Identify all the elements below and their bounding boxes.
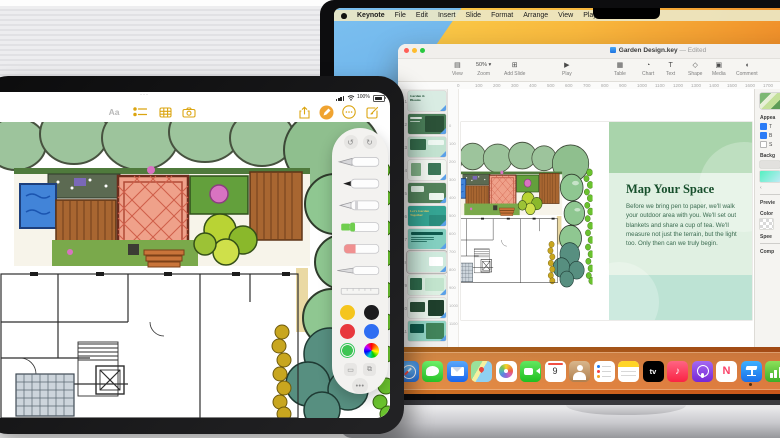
ruler-tick: 1200 <box>673 83 683 88</box>
vruler-tick: 100 <box>449 141 456 146</box>
vruler-tick: 600 <box>449 231 456 236</box>
battery-percent: 100% <box>357 94 370 100</box>
thumbnail-corner-flag <box>440 335 446 341</box>
preview-section-label: Previe <box>760 200 780 206</box>
thumbnail-title: Garden & Blooms <box>410 95 436 102</box>
vruler-tick: 800 <box>449 267 456 272</box>
toolbar-shape-label: Shape <box>688 71 702 77</box>
slide-thumbnail[interactable] <box>408 321 446 341</box>
slide-thumbnail-art <box>408 160 446 180</box>
toolbar-view-button[interactable]: ▤View <box>452 61 463 77</box>
background-wall <box>0 6 352 85</box>
color-swatch-red[interactable] <box>340 324 355 339</box>
color-swatch-yellow[interactable] <box>340 305 355 320</box>
thumbnail-block <box>411 232 444 234</box>
cellular-icon <box>336 96 344 101</box>
ruler-tick: 1400 <box>709 83 719 88</box>
background-swatch[interactable] <box>760 161 780 168</box>
ruler-tick: 300 <box>511 83 519 88</box>
slide-canvas-area[interactable]: Map Your Space Before we bring pen to pa… <box>459 89 754 347</box>
slide-thumbnail[interactable] <box>408 160 446 180</box>
slide-garden-illustration <box>461 122 609 320</box>
ruler-tick: 1500 <box>727 83 737 88</box>
toolbar-play-label: Play <box>562 71 572 77</box>
slide-thumbnail-art <box>408 183 446 203</box>
thumbnail-block <box>411 163 421 176</box>
slide-thumbnail-art <box>408 321 446 341</box>
dock-music-icon[interactable]: ♪ <box>667 356 689 386</box>
ruler-tick: 700 <box>583 83 591 88</box>
ruler-tick: 800 <box>601 83 609 88</box>
slide-thumbnail-art <box>408 275 446 295</box>
slide-thumbnail-art: Let's Garden Together <box>408 206 446 226</box>
pen-tool[interactable] <box>340 201 379 210</box>
slide-thumbnail-art <box>408 252 446 272</box>
view-icon: ▤ <box>452 61 463 70</box>
vruler-tick: 0 <box>449 123 451 128</box>
undo-button[interactable]: ↺ <box>344 135 358 149</box>
dock-facetime-icon[interactable] <box>520 356 542 386</box>
slide-thumbnail-art <box>408 137 446 157</box>
chart-icon: ◔ <box>642 61 654 70</box>
toolbar-chart-label: Chart <box>642 71 654 77</box>
menu-item-format[interactable]: Format <box>491 12 513 19</box>
thumbnail-corner-flag <box>440 105 446 111</box>
slide-thumbnail-row-11[interactable]: 11 <box>398 321 447 341</box>
markup-tools <box>332 152 388 302</box>
panel-checkbox-row[interactable]: S <box>760 141 780 148</box>
toolbar-add-slide-button[interactable]: ⊞Add Slide <box>504 61 525 77</box>
ruler-tick: 1000 <box>637 83 647 88</box>
notes-toolbar: Aa <box>0 102 390 122</box>
dock-messages-icon[interactable] <box>422 356 444 386</box>
dock-mail-icon[interactable] <box>446 356 468 386</box>
thumbnail-title: Let's Garden Together <box>410 210 436 217</box>
toolbar-shape-button[interactable]: ◇Shape <box>688 61 702 77</box>
color-swatch-blue[interactable] <box>364 324 379 339</box>
multitasking-handle[interactable]: ··· <box>140 92 149 98</box>
thumbnail-corner-flag <box>440 266 446 272</box>
checkbox[interactable] <box>760 123 767 130</box>
thumbnail-corner-flag <box>440 151 446 157</box>
toolbar-zoom-label: Zoom <box>476 71 491 77</box>
slide-thumbnail-row-10[interactable]: 10 <box>398 298 447 318</box>
markup-active-button[interactable] <box>318 104 334 120</box>
media-insert-button[interactable]: ▭ <box>344 363 357 376</box>
zoom-icon: 50% ▾ <box>476 61 491 70</box>
vruler-tick: 700 <box>449 249 456 254</box>
color-swatch-black[interactable] <box>364 305 379 320</box>
marker-tool[interactable] <box>343 179 379 188</box>
panel-checkbox-row[interactable]: B <box>760 132 780 139</box>
panel-divider <box>760 243 780 244</box>
slide-thumbnail[interactable]: Garden & Blooms <box>408 91 446 111</box>
thumbnail-corner-flag <box>440 220 446 226</box>
shape-icon: ◇ <box>688 61 702 70</box>
checkbox-label: S <box>769 142 772 148</box>
vruler-tick: 200 <box>449 159 456 164</box>
ruler-tool[interactable] <box>341 288 379 294</box>
dock-news-icon[interactable]: N <box>716 356 738 386</box>
macos-menu-bar: KeynoteFileEditInsertSlideFormatArrangeV… <box>334 10 780 21</box>
display-notch <box>593 8 660 19</box>
toolbar-media-button[interactable]: ▣Media <box>712 61 726 77</box>
menu-item-keynote[interactable]: Keynote <box>357 12 385 19</box>
checkbox-label: T <box>769 124 772 130</box>
comment-icon: ◖ <box>736 61 758 70</box>
current-slide[interactable]: Map Your Space Before we bring pen to pa… <box>461 122 752 320</box>
toolbar-media-label: Media <box>712 71 726 77</box>
thumbnail-block <box>410 324 424 333</box>
ruler-tick: 1700 <box>763 83 773 88</box>
table-button[interactable] <box>157 104 173 120</box>
wifi-icon <box>347 94 355 101</box>
slide-thumbnail-row-3[interactable]: 3 <box>398 137 447 157</box>
thumbnail-corner-flag <box>440 128 446 134</box>
camera-button[interactable] <box>181 104 197 120</box>
slide-thumbnail-row-4[interactable]: 4 <box>398 160 447 180</box>
toolbar-text-label: Text <box>666 71 675 77</box>
vruler-tick: 500 <box>449 213 456 218</box>
checklist-button[interactable] <box>132 104 148 120</box>
slide-thumbnail-art <box>408 298 446 318</box>
eraser-tool[interactable] <box>344 244 379 253</box>
dock-numbers-icon[interactable] <box>765 356 780 386</box>
slide-thumbnail-row-5[interactable]: 5 <box>398 183 447 203</box>
toolbar-chart-button[interactable]: ◔Chart <box>642 61 654 77</box>
dock-keynote-icon[interactable] <box>740 356 762 386</box>
toolbar-table-label: Table <box>614 71 626 77</box>
ruler-tick: 500 <box>547 83 555 88</box>
toolbar-add-slide-label: Add Slide <box>504 71 525 77</box>
dock-tv-icon[interactable]: tv <box>642 356 664 386</box>
gradient-swatch[interactable] <box>760 171 780 182</box>
slide-thumbnail-row-9[interactable]: 9 <box>398 275 447 295</box>
ruler-tick: 100 <box>475 83 483 88</box>
keynote-window: Garden Design.key — Edited ▤View50% ▾Zoo… <box>398 44 780 347</box>
menu-item-insert[interactable]: Insert <box>438 12 456 19</box>
ruler-tick: 1600 <box>745 83 755 88</box>
slide-thumbnail-row-8[interactable]: 8 <box>398 252 447 272</box>
toolbar-table-button[interactable]: ▦Table <box>614 61 626 77</box>
slide-body-text: Before we bring pen to paper, we'll walk… <box>626 202 740 248</box>
thumbnail-corner-flag <box>440 197 446 203</box>
menu-item-edit[interactable]: Edit <box>416 12 428 19</box>
panel-checkbox-row[interactable]: T <box>760 123 780 130</box>
text-format-button[interactable]: Aa <box>106 104 122 120</box>
slide-thumbnail-art: Garden & Blooms <box>408 91 446 111</box>
dock-photos-icon[interactable] <box>495 356 517 386</box>
menu-item-view[interactable]: View <box>558 12 573 19</box>
ipad-status-bar: ··· 100% <box>0 92 390 102</box>
redo-button[interactable]: ↻ <box>363 135 377 149</box>
ipad-screen: ··· 100% Aa <box>0 92 390 418</box>
ruler-tick: 1300 <box>691 83 701 88</box>
dock-calendar-icon[interactable]: 9 <box>544 356 566 386</box>
slide-thumbnail[interactable] <box>408 252 446 272</box>
play-icon: ▶ <box>562 61 572 70</box>
slide-text-panel: Map Your Space Before we bring pen to pa… <box>609 122 752 320</box>
thumbnail-block <box>410 139 426 150</box>
color-swatches <box>340 305 380 358</box>
toolbar-zoom-button[interactable]: 50% ▾Zoom <box>476 61 491 77</box>
thumbnail-block <box>428 140 444 145</box>
slide-thumbnail[interactable] <box>408 137 446 157</box>
thumbnail-block <box>410 278 421 290</box>
ruler-tick: 400 <box>529 83 537 88</box>
more-options-button[interactable] <box>341 104 357 120</box>
dock-podcasts-icon[interactable] <box>691 356 713 386</box>
checkbox-label: B <box>769 133 772 139</box>
slide-thumbnail-row-6[interactable]: 6Let's Garden Together <box>398 206 447 226</box>
apple-menu-icon[interactable] <box>341 13 347 19</box>
format-inspector-panel: AppeaTBSBackg‹PrevieColorSpeeComp <box>754 89 780 347</box>
slide-thumbnail[interactable] <box>408 229 446 249</box>
checkbox[interactable] <box>760 132 767 139</box>
appearance-section-label: Appea <box>760 115 780 121</box>
active-app-indicator <box>749 383 752 386</box>
thumbnail-block <box>410 117 422 119</box>
thumbnail-corner-flag <box>440 174 446 180</box>
keynote-toolbar: ▤View50% ▾Zoom⊞Add Slide▶Play▦Table◔Char… <box>398 59 780 82</box>
slide-thumbnail-row-2[interactable]: 2 <box>398 114 447 134</box>
checkbox[interactable] <box>760 141 767 148</box>
ruler-tick: 900 <box>619 83 627 88</box>
menu-item-file[interactable]: File <box>395 12 406 19</box>
speed-section-label: Spee <box>760 234 780 240</box>
keynote-doc-icon <box>610 47 616 53</box>
thumbnail-block <box>411 237 435 238</box>
dock-reminders-icon[interactable] <box>593 356 615 386</box>
window-titlebar[interactable]: Garden Design.key — Edited <box>398 44 780 59</box>
vruler-tick: 300 <box>449 177 456 182</box>
window-title: Garden Design.key — Edited <box>398 47 780 54</box>
macos-dock: 9tv♪N <box>392 352 780 390</box>
toolbar-comment-button[interactable]: ◖Comment <box>736 61 758 77</box>
thumbnail-block <box>410 121 420 122</box>
thumbnail-corner-flag <box>440 312 446 318</box>
share-button[interactable] <box>296 104 312 120</box>
color-checker-swatch[interactable] <box>760 219 773 229</box>
thumbnail-block <box>410 302 425 313</box>
lid-groove <box>566 405 686 415</box>
vruler-tick: 1100 <box>449 321 458 326</box>
palette-more-button[interactable]: ••• <box>352 378 368 394</box>
color-section-label: Color <box>760 211 780 217</box>
panel-preview-thumbnail <box>760 93 780 109</box>
slide-thumbnail-row-1[interactable]: 1Garden & Blooms <box>398 91 447 111</box>
slide-thumbnail[interactable] <box>408 114 446 134</box>
ruler-tick: 1100 <box>655 83 665 88</box>
shapes-button[interactable]: ⧉ <box>363 363 376 376</box>
color-swatch-green[interactable] <box>340 343 355 358</box>
thumbnail-block <box>411 239 435 240</box>
slide-navigator: 1Garden & Blooms23456Let's Garden Togeth… <box>398 89 448 347</box>
slide-title: Map Your Space <box>626 182 714 197</box>
vruler-tick: 1000 <box>449 303 458 308</box>
slide-thumbnail[interactable] <box>408 183 446 203</box>
slide-thumbnail-row-7[interactable]: 7 <box>398 229 447 249</box>
media-icon: ▣ <box>712 61 726 70</box>
collapse-chevron-icon[interactable]: ‹ <box>760 185 780 191</box>
slide-thumbnail-art <box>408 229 446 249</box>
slide-thumbnail[interactable]: Let's Garden Together <box>408 206 446 226</box>
compose-button[interactable] <box>364 104 380 120</box>
slide-thumbnail-art <box>408 114 446 134</box>
panel-divider <box>760 194 780 195</box>
markup-tool-palette: ↺ ↻ <box>332 128 388 394</box>
toolbar-view-label: View <box>452 71 463 77</box>
background-section-label: Backg <box>760 153 780 159</box>
complete-section-label: Comp <box>760 249 780 255</box>
thumbnail-block <box>411 186 424 192</box>
ruler-tick: 0 <box>457 83 460 88</box>
highlighter-tool[interactable] <box>341 223 379 232</box>
slide-thumbnail[interactable] <box>408 298 446 318</box>
menu-item-slide[interactable]: Slide <box>465 12 481 19</box>
vruler-tick: 400 <box>449 195 456 200</box>
text-icon: T <box>666 61 675 70</box>
fountain-pen-tool[interactable] <box>339 157 379 166</box>
thumbnail-corner-flag <box>440 243 446 249</box>
battery-icon <box>373 95 385 102</box>
table-icon: ▦ <box>614 61 626 70</box>
scene: KeynoteFileEditInsertSlideFormatArrangeV… <box>0 0 780 438</box>
fineliner-tool[interactable] <box>337 267 378 275</box>
add-slide-icon: ⊞ <box>504 61 525 70</box>
macbook-base <box>340 400 780 438</box>
thumbnail-corner-flag <box>440 289 446 295</box>
vruler-tick: 900 <box>449 285 456 290</box>
menu-item-arrange[interactable]: Arrange <box>523 12 548 19</box>
color-swatch-multicolor[interactable] <box>364 343 379 358</box>
ruler-tick: 200 <box>493 83 501 88</box>
dock-notes-icon[interactable] <box>618 356 640 386</box>
vertical-ruler: 010020030040050060070080090010001100 <box>448 89 459 347</box>
toolbar-play-button[interactable]: ▶Play <box>562 61 572 77</box>
ruler-tick: 600 <box>565 83 573 88</box>
toolbar-comment-label: Comment <box>736 71 758 77</box>
dock-maps-icon[interactable] <box>471 356 493 386</box>
thumbnail-block <box>411 241 428 242</box>
dock-contacts-icon[interactable] <box>569 356 591 386</box>
ipad: ··· 100% Aa <box>0 76 404 434</box>
toolbar-text-button[interactable]: TText <box>666 61 675 77</box>
slide-thumbnail[interactable] <box>408 275 446 295</box>
